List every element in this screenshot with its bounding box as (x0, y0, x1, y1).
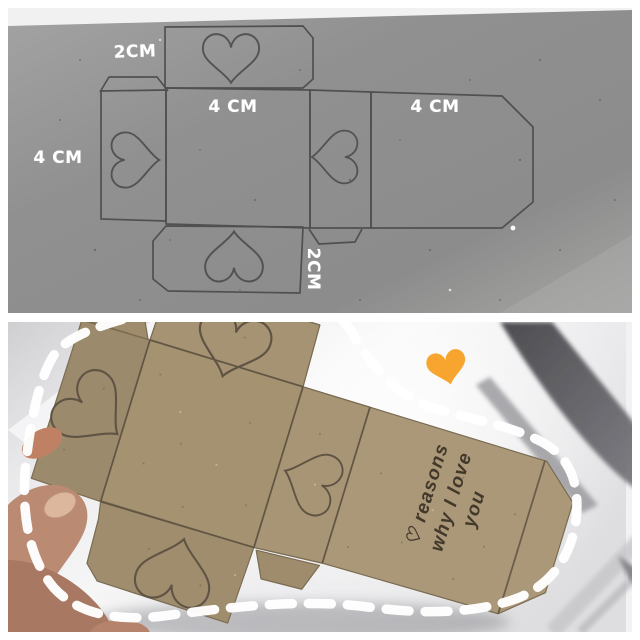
cutout-scene (8, 322, 632, 632)
craft-tutorial-collage: 2CM 4 CM 4 CM 4 CM 2CM (0, 0, 640, 640)
cutout-photo: ♡ reasons why I love you (8, 322, 632, 632)
label-base-width: 4 CM (208, 97, 257, 117)
label-bottom-flap: 2CM (303, 248, 323, 291)
label-lid-width: 4 CM (410, 97, 459, 117)
label-lid-height: 2CM (113, 41, 156, 62)
label-side-height: 4 CM (33, 148, 82, 168)
template-photo: 2CM 4 CM 4 CM 4 CM 2CM (8, 8, 632, 313)
